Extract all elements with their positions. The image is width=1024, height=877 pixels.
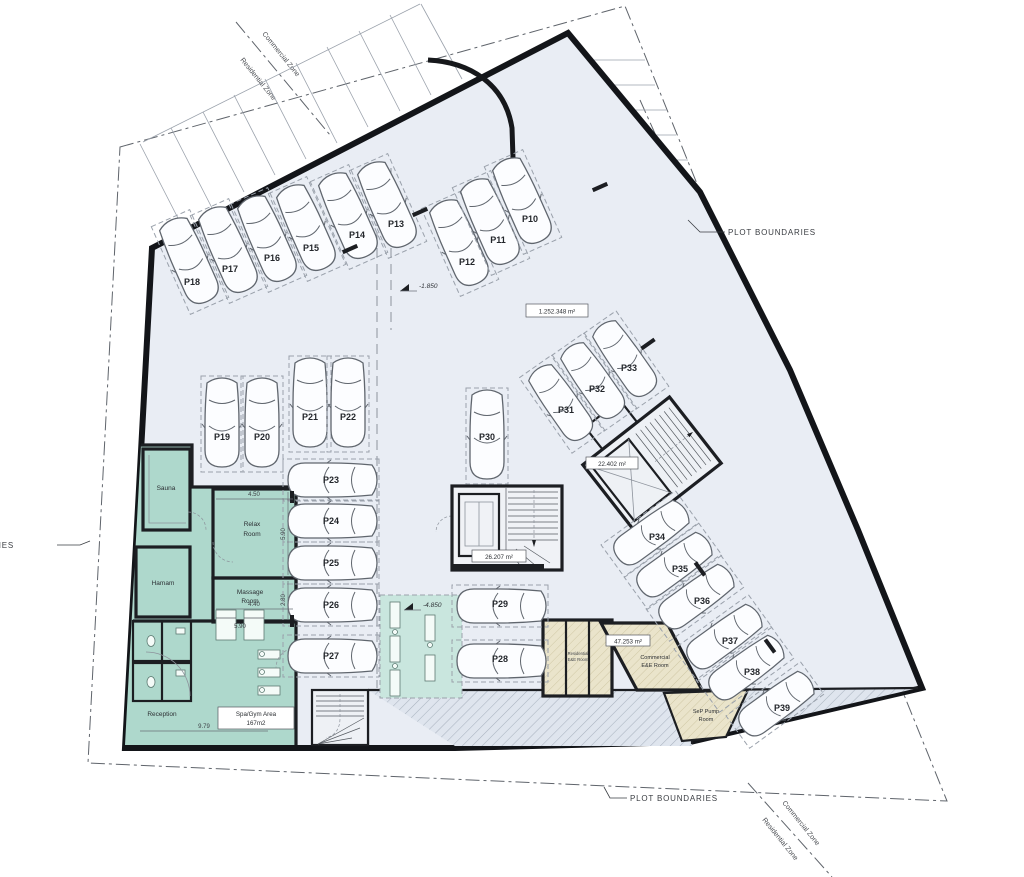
- svg-text:PLOT BOUNDARIES: PLOT BOUNDARIES: [630, 794, 718, 803]
- svg-text:2.80: 2.80: [281, 594, 287, 606]
- svg-text:P23: P23: [323, 475, 339, 485]
- zone-label-residential-bottom: Residential Zone: [760, 817, 799, 862]
- svg-text:P32: P32: [589, 384, 605, 394]
- svg-text:P16: P16: [264, 253, 280, 263]
- plot-boundary-callout-bottom: PLOT BOUNDARIES: [604, 787, 718, 803]
- car-icon: [290, 358, 330, 447]
- massage-room-label: Massage: [237, 589, 264, 596]
- svg-text:P34: P34: [649, 532, 665, 542]
- basement-floor-plan: Commercial Zone Residential Zone Commerc…: [0, 0, 1024, 877]
- svg-text:P28: P28: [492, 654, 508, 664]
- stall-p22: [327, 356, 369, 452]
- svg-text:P25: P25: [323, 558, 339, 568]
- svg-text:P12: P12: [459, 257, 475, 267]
- svg-text:P11: P11: [490, 235, 506, 245]
- hamam-label: Hamam: [152, 580, 175, 587]
- svg-text:-1.850: -1.850: [419, 283, 438, 290]
- svg-text:167m2: 167m2: [247, 720, 266, 727]
- svg-text:E&E Room: E&E Room: [568, 657, 589, 662]
- svg-text:E&E Room: E&E Room: [641, 663, 669, 669]
- svg-text:Room: Room: [699, 717, 714, 723]
- svg-text:22.402 m²: 22.402 m²: [598, 461, 626, 468]
- reception-label: Reception: [147, 711, 177, 718]
- commercial-ee-label: Commercial: [640, 655, 669, 661]
- svg-text:5.90: 5.90: [234, 624, 246, 630]
- svg-text:P36: P36: [694, 596, 710, 606]
- spa-gym-area-box: Spa/Gym Area 167m2: [218, 707, 294, 729]
- commercial-area-box: 47.253 m²: [606, 635, 650, 646]
- svg-text:47.253 m²: 47.253 m²: [614, 639, 642, 646]
- central-core-area-box: 26.207 m²: [472, 550, 526, 562]
- svg-text:P13: P13: [388, 219, 404, 229]
- svg-text:P22: P22: [340, 412, 356, 422]
- sauna-label: Sauna: [157, 485, 176, 492]
- plot-area-box: 1.252.348 m²: [526, 304, 588, 317]
- svg-text:P37: P37: [722, 636, 738, 646]
- bottom-stair: [312, 690, 368, 745]
- svg-text:P33: P33: [621, 363, 637, 373]
- central-core: 26.207 m²: [452, 486, 562, 571]
- residential-ee-rooms: Residential E&E Room: [543, 620, 612, 696]
- car-icon: [328, 358, 368, 447]
- upper-core-area-box: 22.402 m²: [586, 457, 638, 469]
- residential-ee-label: Residential: [568, 651, 589, 656]
- svg-text:5.90: 5.90: [281, 528, 287, 540]
- svg-text:P19: P19: [214, 432, 230, 442]
- svg-text:P18: P18: [184, 277, 200, 287]
- svg-text:4.40: 4.40: [248, 602, 260, 608]
- car-icon: [242, 378, 282, 467]
- svg-text:P27: P27: [323, 651, 339, 661]
- svg-text:P17: P17: [222, 264, 238, 274]
- zone-label-commercial-bottom: Commercial Zone: [780, 800, 820, 847]
- plot-boundary-callout-left: PLOT BOUNDARIES: [0, 541, 90, 550]
- svg-text:26.207 m²: 26.207 m²: [485, 554, 513, 561]
- stall-p19: [201, 376, 243, 472]
- car-icon: [202, 378, 242, 467]
- svg-text:P26: P26: [323, 600, 339, 610]
- stall-p20: [241, 376, 283, 472]
- svg-text:Spa/Gym Area: Spa/Gym Area: [236, 711, 277, 718]
- svg-text:P15: P15: [303, 243, 319, 253]
- svg-text:9.79: 9.79: [198, 724, 210, 730]
- stall-p21: [289, 356, 331, 452]
- svg-text:-4.850: -4.850: [423, 602, 442, 609]
- svg-text:P35: P35: [672, 564, 688, 574]
- svg-text:P21: P21: [302, 412, 318, 422]
- svg-text:1.252.348 m²: 1.252.348 m²: [539, 309, 575, 316]
- svg-text:PLOT BOUNDARIES: PLOT BOUNDARIES: [0, 541, 14, 550]
- zone-label-commercial-top: Commercial Zone: [260, 31, 300, 78]
- svg-text:P29: P29: [492, 599, 508, 609]
- svg-text:P38: P38: [744, 667, 760, 677]
- svg-text:P14: P14: [349, 230, 365, 240]
- svg-text:P30: P30: [479, 432, 495, 442]
- svg-text:P39: P39: [774, 703, 790, 713]
- svg-text:P20: P20: [254, 432, 270, 442]
- svg-text:P31: P31: [558, 405, 574, 415]
- pump-room-label: SeP Pump: [693, 709, 719, 715]
- svg-text:4.50: 4.50: [248, 492, 260, 498]
- svg-text:Room: Room: [243, 531, 260, 538]
- svg-text:PLOT BOUNDARIES: PLOT BOUNDARIES: [728, 228, 816, 237]
- svg-text:P10: P10: [522, 214, 538, 224]
- floor-plan-canvas: Commercial Zone Residential Zone Commerc…: [0, 0, 1024, 877]
- svg-text:P24: P24: [323, 516, 339, 526]
- relax-room-label: Relax: [244, 521, 261, 528]
